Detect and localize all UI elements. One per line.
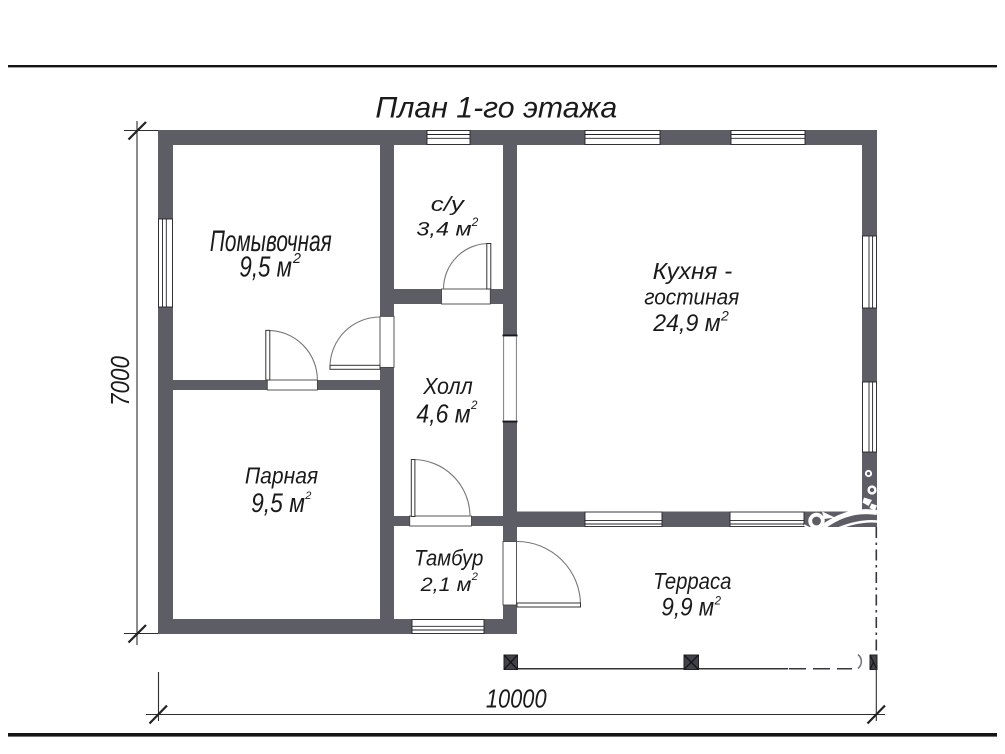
svg-text:3,4 м: 3,4 м: [416, 220, 471, 241]
svg-text:гостиная: гостиная: [644, 284, 739, 309]
svg-text:9,5 м: 9,5 м: [251, 488, 305, 518]
svg-text:Терраса: Терраса: [653, 568, 731, 594]
svg-text:с/у: с/у: [431, 194, 465, 216]
svg-text:9,9 м: 9,9 м: [661, 594, 714, 622]
svg-text:24,9 м: 24,9 м: [652, 310, 720, 337]
svg-text:2: 2: [471, 571, 478, 583]
svg-text:2: 2: [714, 595, 722, 607]
svg-text:Тамбур: Тамбур: [414, 546, 483, 571]
svg-text:2: 2: [292, 251, 301, 267]
svg-text:2: 2: [471, 216, 479, 229]
svg-text:2: 2: [304, 490, 311, 502]
svg-text:Парная: Парная: [245, 463, 318, 489]
svg-text:9,5 м: 9,5 м: [239, 251, 292, 283]
svg-text:Кухня -: Кухня -: [653, 258, 733, 284]
svg-text:2,1 м: 2,1 м: [420, 574, 472, 596]
svg-text:7000: 7000: [105, 356, 135, 406]
svg-text:10000: 10000: [486, 683, 547, 713]
svg-text:2: 2: [720, 308, 729, 324]
svg-text:План 1-го этажа: План 1-го этажа: [375, 92, 617, 125]
svg-text:4,6 м: 4,6 м: [416, 401, 471, 429]
svg-text:Холл: Холл: [422, 373, 472, 399]
svg-text:2: 2: [470, 400, 478, 412]
